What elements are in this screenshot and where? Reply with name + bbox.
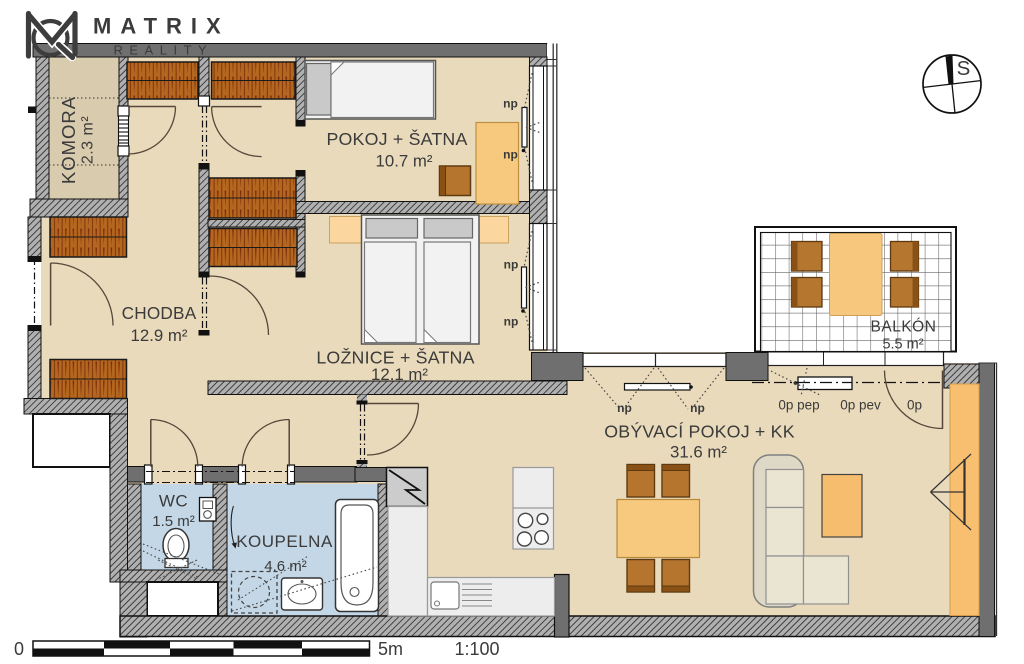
svg-text:CHODBA: CHODBA — [122, 303, 197, 323]
svg-text:12.1 m²: 12.1 m² — [371, 365, 428, 384]
svg-text:WC: WC — [159, 492, 188, 511]
svg-text:REALITY: REALITY — [114, 43, 214, 58]
svg-text:5.5 m²: 5.5 m² — [882, 337, 923, 353]
svg-text:POKOJ + ŠATNA: POKOJ + ŠATNA — [326, 128, 467, 149]
svg-text:10.7 m²: 10.7 m² — [376, 152, 433, 171]
svg-text:0p pev: 0p pev — [840, 398, 881, 413]
svg-text:4.6 m²: 4.6 m² — [264, 558, 307, 575]
svg-text:1.5 m²: 1.5 m² — [152, 513, 195, 530]
svg-text:KOUPELNA: KOUPELNA — [236, 532, 333, 551]
svg-text:0: 0 — [14, 639, 24, 659]
svg-text:MATRIX: MATRIX — [93, 14, 230, 39]
svg-text:31.6 m²: 31.6 m² — [670, 443, 727, 462]
svg-text:0p: 0p — [907, 398, 922, 413]
svg-text:BALKÓN: BALKÓN — [871, 319, 937, 336]
svg-text:np: np — [504, 258, 519, 272]
svg-text:np: np — [617, 401, 632, 415]
svg-text:2.3 m²: 2.3 m² — [80, 116, 97, 165]
svg-text:5m: 5m — [378, 639, 403, 659]
svg-text:np: np — [504, 315, 519, 329]
svg-text:np: np — [503, 97, 518, 111]
svg-text:np: np — [690, 401, 705, 415]
svg-text:np: np — [503, 148, 518, 162]
svg-text:S: S — [957, 57, 971, 80]
svg-text:OBÝVACÍ POKOJ + KK: OBÝVACÍ POKOJ + KK — [604, 422, 795, 442]
svg-text:1:100: 1:100 — [454, 639, 499, 659]
svg-text:KOMORA: KOMORA — [58, 96, 79, 184]
svg-text:12.9 m²: 12.9 m² — [131, 326, 188, 345]
svg-text:0p pep: 0p pep — [778, 398, 819, 413]
